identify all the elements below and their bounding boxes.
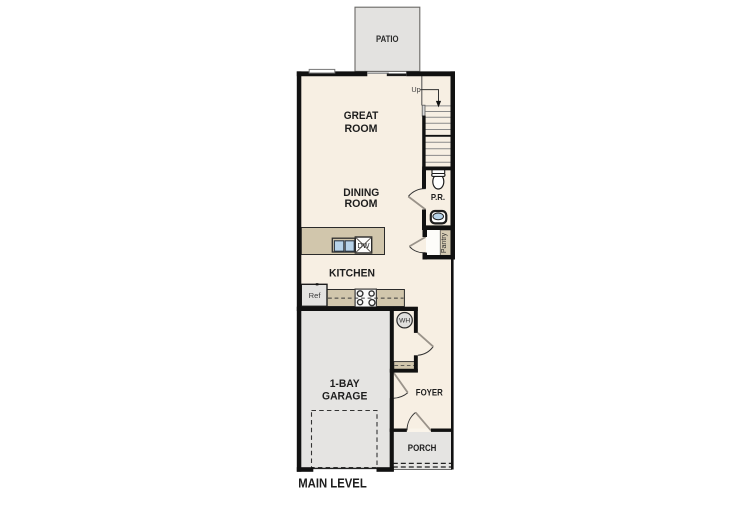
svg-text:ROOM: ROOM [345, 123, 378, 135]
svg-text:Ref: Ref [309, 291, 322, 300]
svg-text:GREAT: GREAT [344, 110, 379, 122]
svg-text:MAIN LEVEL: MAIN LEVEL [298, 476, 367, 491]
svg-text:PATIO: PATIO [376, 34, 399, 44]
svg-text:1-BAY: 1-BAY [330, 378, 360, 390]
svg-text:Pantry: Pantry [441, 232, 448, 253]
svg-text:DW: DW [357, 241, 369, 250]
svg-text:KITCHEN: KITCHEN [329, 268, 375, 280]
svg-text:GARAGE: GARAGE [322, 390, 368, 402]
svg-text:ROOM: ROOM [345, 198, 378, 210]
svg-text:WH: WH [399, 318, 410, 325]
svg-text:FOYER: FOYER [416, 387, 443, 397]
svg-text:PORCH: PORCH [408, 443, 437, 453]
svg-text:P.R.: P.R. [431, 193, 445, 202]
svg-text:Up: Up [411, 85, 420, 94]
